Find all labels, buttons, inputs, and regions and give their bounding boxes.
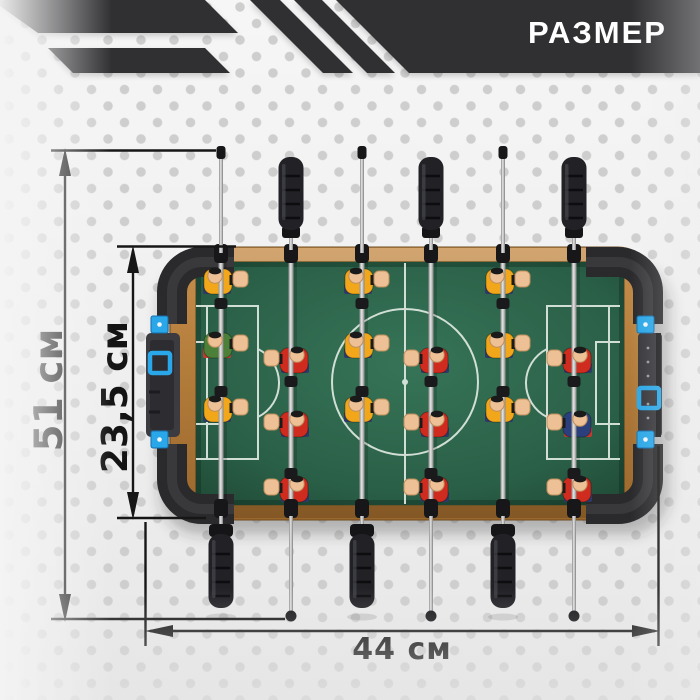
arrow-up-icon	[127, 245, 139, 273]
foosball-table	[146, 146, 662, 622]
score-panel-left	[146, 333, 180, 437]
score-panel-right	[638, 333, 662, 437]
overall-length-label: 51 см	[30, 305, 70, 475]
arrow-right-icon	[632, 625, 660, 637]
arrow-down-icon	[127, 492, 139, 520]
rod	[360, 248, 365, 518]
arrow-left-icon	[145, 625, 173, 637]
rod	[219, 248, 224, 518]
table-length-label: 44 см	[322, 632, 482, 668]
playfield-width-label: 23,5 см	[96, 312, 136, 482]
product-size-card: РАЗМЕР	[0, 0, 700, 700]
playfield	[196, 262, 624, 505]
arrow-up-icon	[59, 148, 71, 176]
rod	[501, 248, 506, 518]
